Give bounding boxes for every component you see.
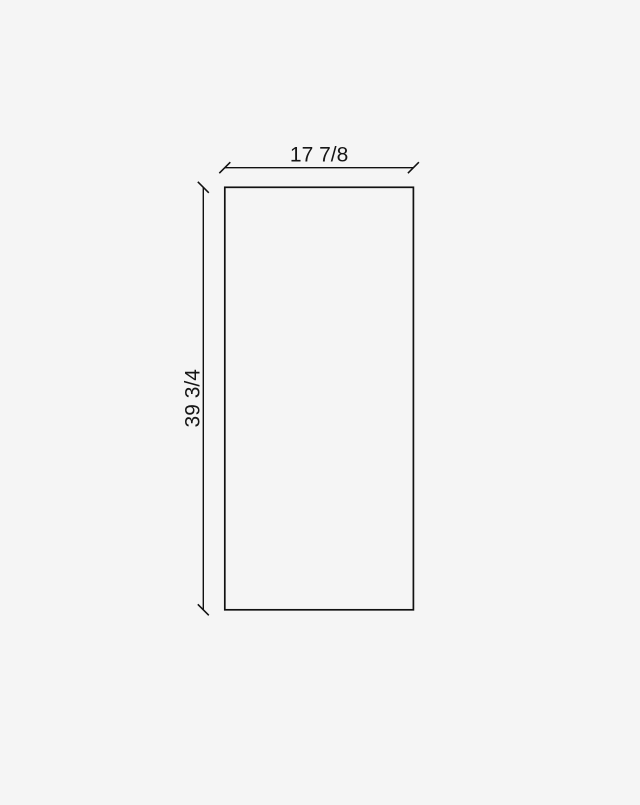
- svg-text:39 3/4: 39 3/4: [182, 369, 205, 428]
- svg-text:17 7/8: 17 7/8: [290, 144, 348, 167]
